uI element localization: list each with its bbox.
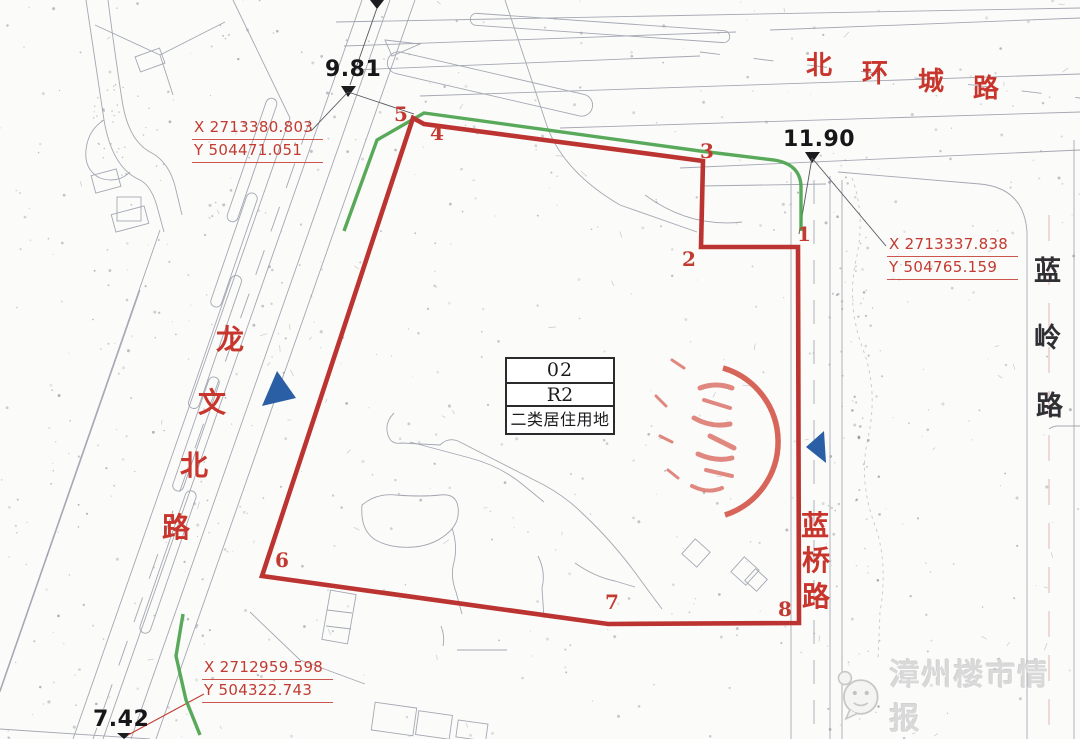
- road-name-lanqiao-char-1: 桥: [802, 547, 830, 575]
- watermark-text: 漳州楼市情报: [890, 650, 1080, 738]
- elevation-11-90-leaders: [799, 158, 886, 246]
- road-name-north-ring-char-2: 城: [918, 68, 944, 94]
- coord-bottom-left: X 2712959.598Y 504322.743: [202, 657, 333, 703]
- vertex-number-6: 6: [275, 550, 289, 570]
- elev-top-left: 9.81: [325, 57, 381, 82]
- coord-right-x: X 2713337.838: [887, 234, 1018, 257]
- vertex-number-3: 3: [700, 141, 714, 161]
- parcel-code: 02: [507, 359, 613, 384]
- road-name-lanling-char-1: 岭: [1034, 325, 1061, 352]
- road-name-north-ring-char-3: 路: [973, 75, 999, 101]
- coord-top-left-y: Y 504471.051: [192, 140, 323, 163]
- official-seal-stamp: [656, 360, 778, 515]
- road-name-longwen-north-char-3: 路: [162, 514, 190, 542]
- coord-top-left-x: X 2713380.803: [192, 117, 323, 140]
- parcel-land-use: 二类居住用地: [507, 407, 613, 433]
- elevation-9-81-triangle: [341, 86, 356, 97]
- parcel-zone-code: R2: [507, 384, 613, 407]
- vertex-number-4: 4: [430, 123, 444, 143]
- road-name-longwen-north-char-2: 北: [180, 452, 208, 480]
- vertex-number-8: 8: [778, 599, 792, 619]
- road-name-north-ring-char-0: 北: [806, 52, 832, 78]
- wechat-bubble-logo-icon: [834, 664, 886, 724]
- coord-right: X 2713337.838Y 504765.159: [887, 234, 1018, 280]
- greenbelt-line-south: [176, 614, 200, 735]
- coord-top-left: X 2713380.803Y 504471.051: [192, 117, 323, 163]
- elev-bottom: 7.42: [93, 707, 149, 732]
- top-edge-marker-triangle: [370, 0, 384, 9]
- parcel-info-box: 02 R2 二类居住用地: [505, 357, 615, 435]
- elevation-11-90-triangle: [805, 152, 820, 163]
- watermark: 漳州楼市情报: [834, 650, 1080, 738]
- coord-right-y: Y 504765.159: [887, 257, 1018, 280]
- vertex-number-1: 1: [797, 224, 811, 244]
- stamp-glyph-marks: [656, 360, 734, 491]
- parcel-map-canvas: 9.8111.907.42 X 2713380.803Y 504471.051X…: [0, 0, 1080, 739]
- vertex-number-2: 2: [682, 249, 696, 269]
- coord-bottom-left-x: X 2712959.598: [202, 657, 333, 680]
- elevation-7-42-triangle: [117, 733, 131, 739]
- road-name-lanqiao-char-2: 路: [802, 583, 830, 611]
- road-name-longwen-north-char-0: 龙: [216, 326, 244, 354]
- elev-top-right: 11.90: [783, 127, 855, 152]
- greenbelt-line-north: [344, 113, 801, 231]
- coord-bottom-left-y: Y 504322.743: [202, 680, 333, 703]
- vertex-number-5: 5: [394, 104, 408, 124]
- road-name-lanling-char-0: 蓝: [1034, 258, 1061, 285]
- road-name-north-ring-char-1: 环: [862, 60, 888, 86]
- flow-arrow-left: [262, 371, 296, 406]
- flow-arrow-right: [806, 431, 826, 463]
- vertex-number-7: 7: [605, 592, 619, 612]
- road-name-lanling-char-2: 路: [1036, 393, 1063, 420]
- road-name-longwen-north-char-1: 文: [198, 389, 226, 417]
- road-name-lanqiao-char-0: 蓝: [801, 512, 829, 540]
